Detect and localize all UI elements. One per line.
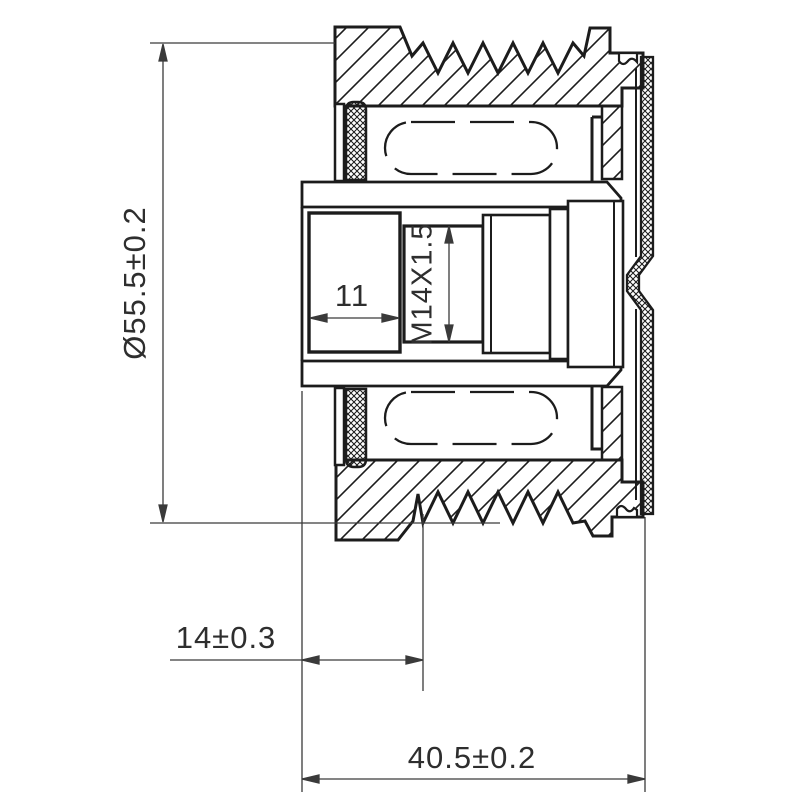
pulley-rim-bottom xyxy=(336,460,643,540)
seal-bar-bottom xyxy=(335,388,344,465)
clutch-race-bottom xyxy=(602,387,622,460)
arrow-up xyxy=(159,44,167,61)
seal-top xyxy=(346,102,366,180)
arrow-left xyxy=(302,775,319,783)
hub-step xyxy=(550,209,568,359)
dust-cap xyxy=(627,57,653,514)
bearing-roller-top xyxy=(385,122,557,174)
dim-label-belt-offset: 14±0.3 xyxy=(176,620,277,655)
bearing-roller-bottom xyxy=(385,392,557,444)
pulley-section-drawing: Ø55.5±0.2 11 M14X1.5 14±0.3 40.5±0.2 xyxy=(0,0,800,800)
dim-label-bore-depth: 11 xyxy=(335,278,369,313)
arrow-right xyxy=(628,775,645,783)
arrow-left xyxy=(302,656,319,664)
pulley-rim-top xyxy=(335,27,643,106)
clutch-race-top xyxy=(602,106,622,179)
seal-bar-top xyxy=(335,104,344,181)
arrow-right xyxy=(406,656,423,664)
dim-label-overall-width: 40.5±0.2 xyxy=(408,740,536,775)
dim-label-outer-diameter: Ø55.5±0.2 xyxy=(117,206,152,360)
arrow-down xyxy=(159,505,167,522)
seal-bottom xyxy=(346,389,366,467)
technical-drawing-canvas: Ø55.5±0.2 11 M14X1.5 14±0.3 40.5±0.2 xyxy=(0,0,800,800)
dim-label-thread: M14X1.5 xyxy=(407,222,439,345)
hub-cylinder xyxy=(483,215,550,353)
